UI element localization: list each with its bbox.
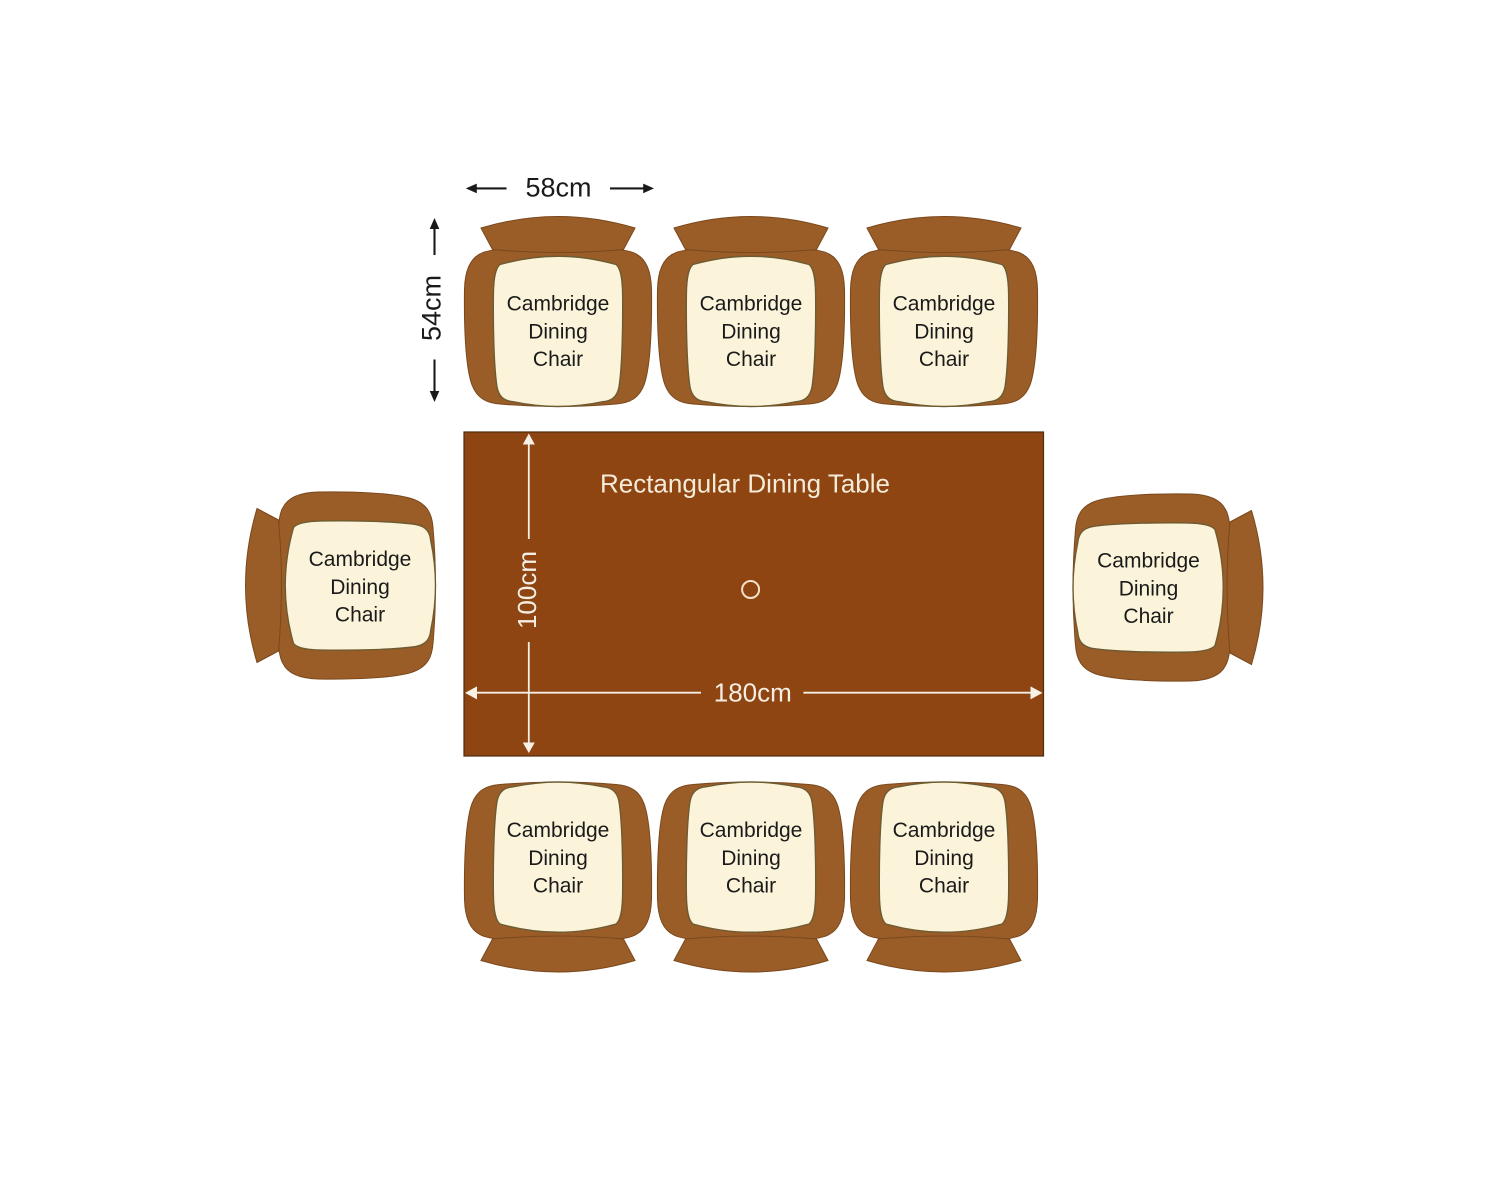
- svg-text:Rectangular Dining Table: Rectangular Dining Table: [600, 469, 890, 499]
- svg-text:Dining: Dining: [1119, 578, 1179, 601]
- svg-text:54cm: 54cm: [417, 275, 447, 341]
- svg-text:Cambridge: Cambridge: [700, 819, 803, 842]
- svg-text:Dining: Dining: [721, 847, 781, 870]
- svg-text:Dining: Dining: [914, 847, 974, 870]
- svg-text:Dining: Dining: [528, 321, 588, 344]
- svg-text:58cm: 58cm: [525, 173, 591, 203]
- svg-text:Chair: Chair: [726, 348, 776, 371]
- svg-text:Cambridge: Cambridge: [1097, 550, 1200, 573]
- svg-text:180cm: 180cm: [714, 678, 792, 708]
- svg-text:Chair: Chair: [533, 348, 583, 371]
- svg-text:Cambridge: Cambridge: [700, 293, 803, 316]
- svg-text:Cambridge: Cambridge: [893, 819, 996, 842]
- svg-text:Dining: Dining: [528, 847, 588, 870]
- svg-text:Chair: Chair: [919, 875, 969, 898]
- svg-text:Chair: Chair: [335, 604, 385, 627]
- svg-text:Dining: Dining: [330, 576, 390, 599]
- svg-text:Chair: Chair: [919, 348, 969, 371]
- svg-text:Cambridge: Cambridge: [507, 819, 610, 842]
- svg-text:Cambridge: Cambridge: [893, 293, 996, 316]
- svg-text:Dining: Dining: [914, 321, 974, 344]
- svg-text:Cambridge: Cambridge: [309, 548, 412, 571]
- svg-text:Chair: Chair: [726, 875, 776, 898]
- svg-text:Chair: Chair: [533, 875, 583, 898]
- svg-text:Dining: Dining: [721, 321, 781, 344]
- svg-text:Cambridge: Cambridge: [507, 293, 610, 316]
- svg-text:100cm: 100cm: [512, 551, 542, 629]
- svg-text:Chair: Chair: [1123, 605, 1173, 628]
